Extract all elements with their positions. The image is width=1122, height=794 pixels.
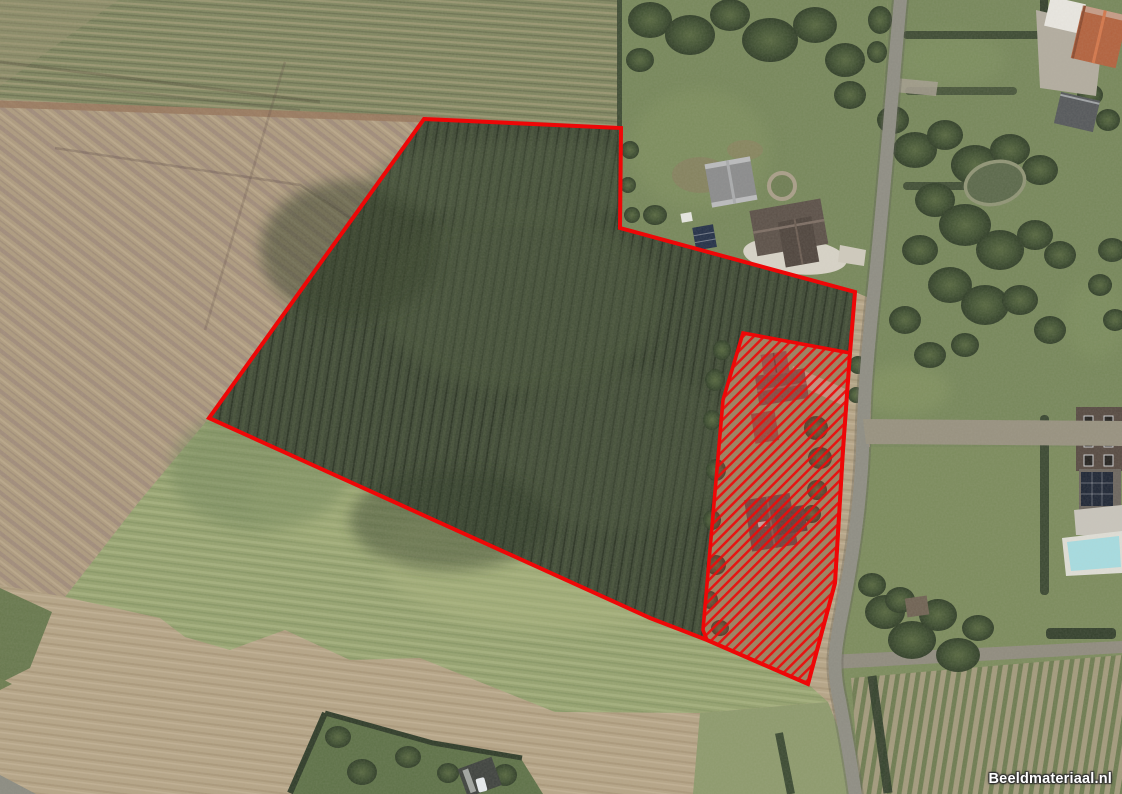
imagery-watermark: Beeldmateriaal.nl <box>989 771 1112 787</box>
aerial-map-canvas <box>0 0 1122 794</box>
aerial-map-screenshot: Beeldmateriaal.nl <box>0 0 1122 794</box>
photo-grain <box>0 0 1122 794</box>
